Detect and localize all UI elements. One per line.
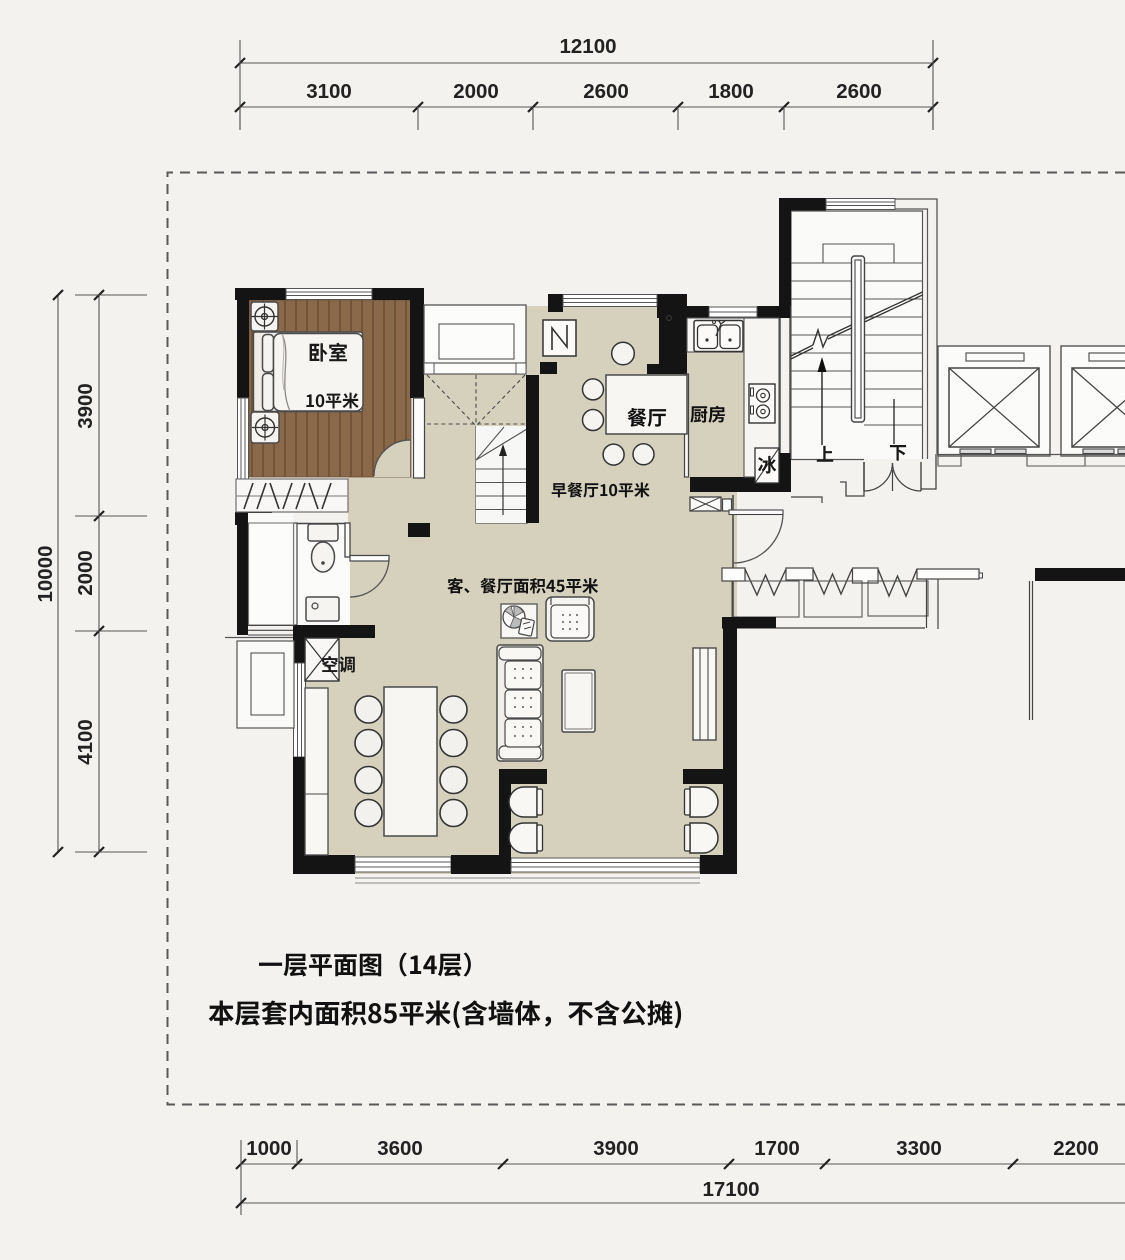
svg-text:2600: 2600 (836, 80, 882, 103)
svg-text:17100: 17100 (702, 1178, 759, 1201)
svg-text:1700: 1700 (754, 1137, 800, 1160)
svg-text:1800: 1800 (708, 80, 754, 103)
svg-text:3600: 3600 (377, 1137, 423, 1160)
svg-text:3300: 3300 (896, 1137, 942, 1160)
svg-text:3100: 3100 (306, 80, 352, 103)
svg-text:12100: 12100 (559, 35, 616, 58)
svg-text:2200: 2200 (1053, 1137, 1099, 1160)
svg-text:1000: 1000 (246, 1137, 292, 1160)
svg-text:2000: 2000 (74, 550, 97, 596)
svg-text:10000: 10000 (34, 545, 57, 602)
svg-text:2000: 2000 (453, 80, 499, 103)
svg-text:3900: 3900 (593, 1137, 639, 1160)
svg-text:4100: 4100 (74, 719, 97, 765)
svg-text:3900: 3900 (74, 383, 97, 429)
svg-text:2600: 2600 (583, 80, 629, 103)
